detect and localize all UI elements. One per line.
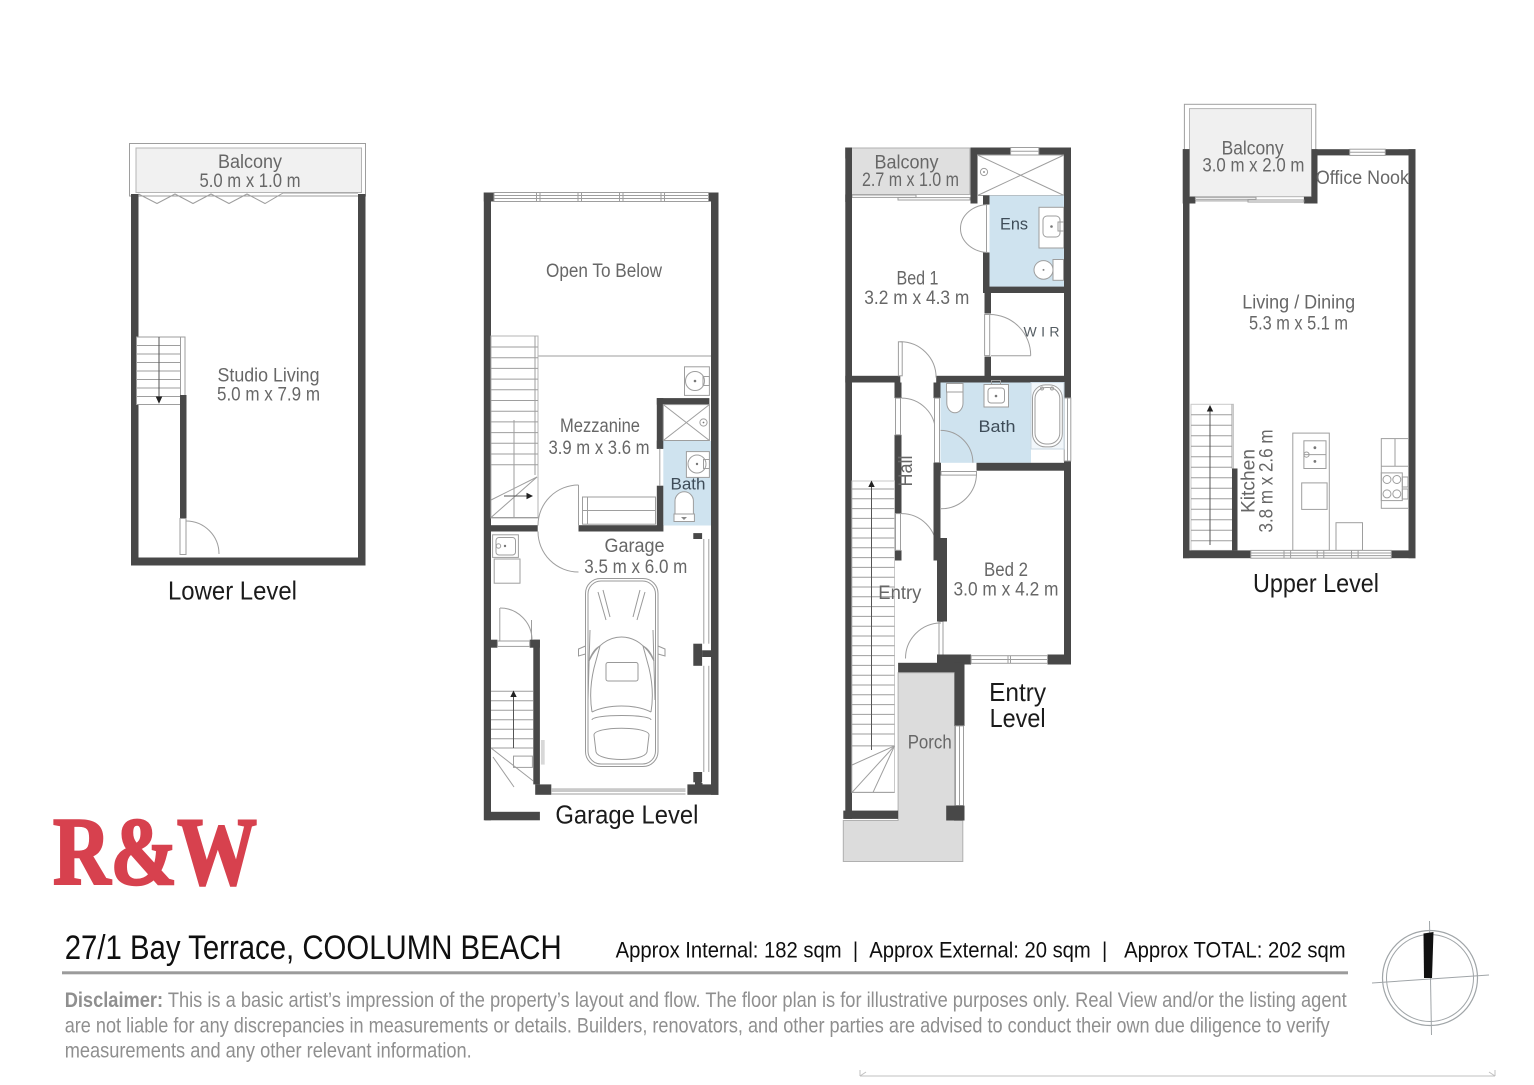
svg-text:Upper Level: Upper Level bbox=[1253, 568, 1379, 598]
svg-text:Mezzanine: Mezzanine bbox=[560, 416, 640, 437]
svg-text:Balcony: Balcony bbox=[218, 152, 282, 173]
svg-text:Bed 2: Bed 2 bbox=[984, 560, 1028, 581]
svg-text:Porch: Porch bbox=[908, 733, 952, 754]
svg-text:3.8 m x 2.6 m: 3.8 m x 2.6 m bbox=[1256, 430, 1277, 533]
svg-text:Lower Level: Lower Level bbox=[168, 576, 297, 606]
svg-text:Entry: Entry bbox=[878, 583, 921, 604]
svg-text:Ens: Ens bbox=[1000, 215, 1028, 234]
svg-text:W I R: W I R bbox=[1024, 323, 1060, 339]
svg-text:Garage Level: Garage Level bbox=[555, 800, 698, 830]
svg-text:3.0 m x 2.0 m: 3.0 m x 2.0 m bbox=[1202, 156, 1304, 177]
svg-text:2.7 m x 1.0 m: 2.7 m x 1.0 m bbox=[862, 170, 959, 191]
svg-text:5.3 m x 5.1 m: 5.3 m x 5.1 m bbox=[1249, 314, 1348, 335]
svg-text:Studio Living: Studio Living bbox=[218, 366, 320, 387]
svg-text:Bath: Bath bbox=[979, 417, 1016, 436]
svg-text:Open To Below: Open To Below bbox=[546, 261, 662, 282]
svg-text:Level: Level bbox=[990, 703, 1046, 733]
svg-text:3.5 m x 6.0 m: 3.5 m x 6.0 m bbox=[584, 557, 687, 578]
svg-text:Living / Dining: Living / Dining bbox=[1242, 293, 1355, 314]
svg-text:5.0 m x 1.0 m: 5.0 m x 1.0 m bbox=[200, 171, 301, 192]
svg-text:Office Nook: Office Nook bbox=[1316, 168, 1409, 189]
svg-text:Disclaimer: This is a basic ar: Disclaimer: This is a basic artist’s imp… bbox=[65, 989, 1347, 1012]
svg-text:Approx Internal: 182 sqm | A: Approx Internal: 182 sqm | Approx Extern… bbox=[616, 938, 1346, 963]
svg-text:Garage: Garage bbox=[605, 536, 665, 557]
svg-text:3.2 m x 4.3 m: 3.2 m x 4.3 m bbox=[864, 288, 969, 309]
svg-text:R&W: R&W bbox=[53, 798, 257, 905]
svg-text:Bed 1: Bed 1 bbox=[897, 269, 939, 290]
svg-text:Hall: Hall bbox=[896, 456, 917, 487]
svg-text:are not liable for any discrep: are not liable for any discrepancies in … bbox=[65, 1014, 1330, 1037]
svg-text:3.9 m x 3.6 m: 3.9 m x 3.6 m bbox=[549, 438, 650, 459]
svg-text:27/1 Bay Terrace, COOLUMN BEAC: 27/1 Bay Terrace, COOLUMN BEACH bbox=[65, 929, 562, 967]
svg-text:5.0 m x 7.9 m: 5.0 m x 7.9 m bbox=[217, 385, 320, 406]
svg-text:3.0 m x 4.2 m: 3.0 m x 4.2 m bbox=[954, 580, 1059, 601]
svg-text:measurements and any other rel: measurements and any other relevant info… bbox=[65, 1040, 472, 1063]
